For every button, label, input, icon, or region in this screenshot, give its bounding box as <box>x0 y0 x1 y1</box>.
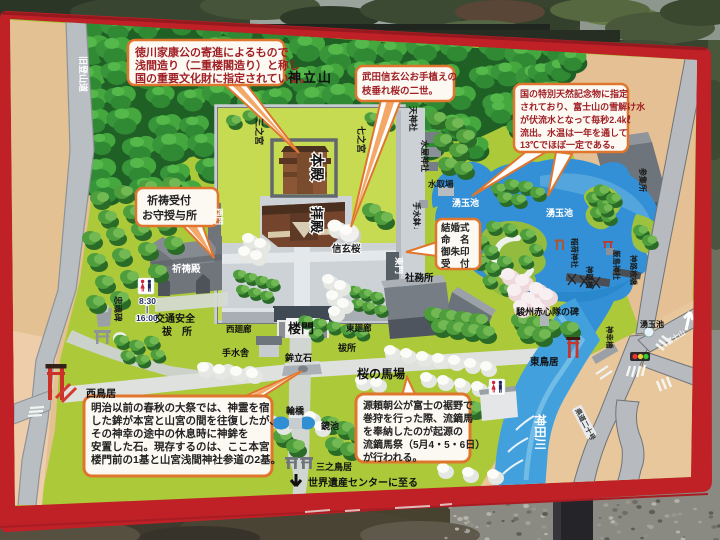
svg-text:社務所: 社務所 <box>404 272 434 284</box>
svg-text:明治以前の春秋の大祭では、神霊を宿: 明治以前の春秋の大祭では、神霊を宿 <box>91 401 270 414</box>
svg-text:手水舎: 手水舎 <box>222 347 250 358</box>
svg-text:湧玉池: 湧玉池 <box>546 207 573 218</box>
svg-text:御朱印: 御朱印 <box>440 246 470 258</box>
svg-text:厳島神社: 厳島神社 <box>612 250 622 280</box>
svg-text:東門: 東門 <box>394 257 404 274</box>
svg-text:旧登山道: 旧登山道 <box>78 56 89 92</box>
svg-text:拝殿: 拝殿 <box>309 207 324 234</box>
svg-text:世界遺産センターに至る: 世界遺産センターに至る <box>308 476 418 489</box>
svg-text:鏡池: 鏡池 <box>320 420 339 431</box>
svg-text:国の重要文化財に指定されている。: 国の重要文化財に指定されている。 <box>135 71 311 85</box>
svg-text:巻狩を行った際、流鏑馬: 巻狩を行った際、流鏑馬 <box>362 412 473 425</box>
svg-text:鉾立石: 鉾立石 <box>285 352 312 363</box>
svg-text:西廻廊: 西廻廊 <box>226 324 252 334</box>
svg-text:神立山: 神立山 <box>288 70 333 85</box>
svg-text:西門: 西門 <box>214 208 224 225</box>
svg-text:輪橋: 輪橋 <box>286 405 305 416</box>
svg-text:武田信玄公お手植えの: 武田信玄公お手植えの <box>362 71 457 83</box>
svg-text:神路枚橋: 神路枚橋 <box>629 255 639 285</box>
svg-text:を奉納したのが起源の: を奉納したのが起源の <box>363 425 463 438</box>
svg-text:した鉾が本宮と山宮の間を往復したが、: した鉾が本宮と山宮の間を往復したが、 <box>91 414 280 427</box>
svg-text:が行われる。: が行われる。 <box>363 451 423 464</box>
svg-text:源頼朝公が富士の裾野で: 源頼朝公が富士の裾野で <box>363 399 473 412</box>
svg-text:駿州赤心隊の碑: 駿州赤心隊の碑 <box>516 306 579 317</box>
svg-text:徳川家康公の寄進によるもので: 徳川家康公の寄進によるもので <box>134 45 289 59</box>
svg-text:浅間造り（二重楼閣造り）と称し: 浅間造り（二重楼閣造り）と称し <box>135 58 300 72</box>
svg-text:神田川: 神田川 <box>533 414 548 450</box>
svg-text:水屋神社: 水屋神社 <box>420 139 430 172</box>
svg-text:七之宮: 七之宮 <box>356 126 367 153</box>
svg-text:受 付: 受 付 <box>441 258 470 270</box>
svg-text:三之鳥居: 三之鳥居 <box>316 461 352 472</box>
svg-text:西鳥居: 西鳥居 <box>86 387 116 400</box>
svg-text:本殿: 本殿 <box>309 153 325 182</box>
svg-text:結婚式: 結婚式 <box>441 222 470 234</box>
svg-text:流出。水温は一年を通して: 流出。水温は一年を通して <box>520 127 628 138</box>
svg-text:東廻廊: 東廻廊 <box>346 323 372 333</box>
svg-text:湧玉池: 湧玉池 <box>640 319 664 329</box>
svg-text:祓所: 祓所 <box>338 342 356 353</box>
svg-text:信玄桜: 信玄桜 <box>332 243 361 255</box>
svg-text:13℃でほぼ一定である。: 13℃でほぼ一定である。 <box>520 139 620 150</box>
svg-text:神幸橋: 神幸橋 <box>605 326 615 349</box>
svg-text:命 名: 命 名 <box>440 234 470 246</box>
svg-text:流鏑馬祭（5月4・5・6日）: 流鏑馬祭（5月4・5・6日） <box>363 438 485 451</box>
svg-text:が伏流水となって毎秒2.4㎘: が伏流水となって毎秒2.4㎘ <box>520 114 631 125</box>
svg-text:交通安全: 交通安全 <box>155 312 196 325</box>
svg-text:祓 所: 祓 所 <box>162 325 192 338</box>
svg-text:祈祷受付: 祈祷受付 <box>147 193 191 207</box>
svg-text:桜の馬場: 桜の馬場 <box>357 366 405 381</box>
svg-text:水取場: 水取場 <box>427 179 454 189</box>
svg-text:湧玉池: 湧玉池 <box>452 197 479 208</box>
svg-text:神路橋: 神路橋 <box>585 266 595 289</box>
svg-text:お守授与所: お守授与所 <box>142 208 197 222</box>
svg-text:国の特別天然記念物に指定: 国の特別天然記念物に指定 <box>520 88 629 99</box>
svg-text:天神社: 天神社 <box>408 106 418 132</box>
svg-text:枝垂れ桜の二世。: 枝垂れ桜の二世。 <box>361 85 438 97</box>
svg-text:楼門前の1基と山宮浅間神社参道の2基。: 楼門前の1基と山宮浅間神社参道の2基。 <box>91 453 281 466</box>
svg-text:楼門: 楼門 <box>288 321 314 336</box>
svg-text:されており、富士山の雪解け水: されており、富士山の雪解け水 <box>520 101 646 112</box>
svg-text:稲荷神社: 稲荷神社 <box>570 238 580 268</box>
svg-text:手水鉢↓: 手水鉢↓ <box>412 202 422 230</box>
svg-text:三之宮: 三之宮 <box>254 118 265 145</box>
svg-text:安置した石。現存するのは、ここ本宮: 安置した石。現存するのは、ここ本宮 <box>91 440 270 453</box>
svg-text:忠魂碑: 忠魂碑 <box>113 296 123 322</box>
svg-text:祈祷殿: 祈祷殿 <box>172 263 201 275</box>
svg-text:参集所: 参集所 <box>638 167 648 192</box>
svg-text:東鳥居: 東鳥居 <box>529 356 559 368</box>
svg-text:その神幸の途中の休息時に神鉾を: その神幸の途中の休息時に神鉾を <box>91 427 249 440</box>
